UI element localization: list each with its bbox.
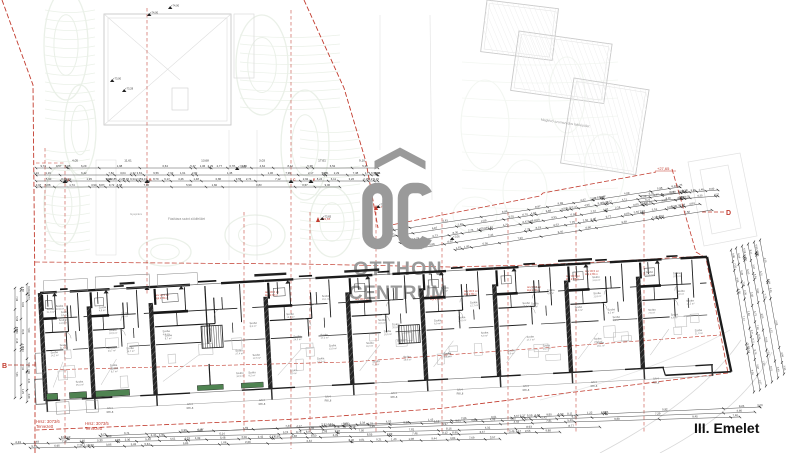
svg-text:1,98: 1,98 <box>117 164 123 168</box>
svg-text:3,46: 3,46 <box>509 429 515 433</box>
svg-text:5,20: 5,20 <box>362 164 368 168</box>
svg-text:2,36: 2,36 <box>125 438 131 442</box>
svg-text:13,8 m²: 13,8 m² <box>286 316 294 319</box>
svg-text:7,99: 7,99 <box>15 296 18 301</box>
svg-text:4,21: 4,21 <box>27 379 30 384</box>
svg-text:5,30: 5,30 <box>97 438 103 442</box>
svg-text:13,4 m²: 13,4 m² <box>646 274 654 277</box>
svg-text:7,69: 7,69 <box>27 369 30 374</box>
svg-text:légt 2,65 m: légt 2,65 m <box>155 296 168 300</box>
svg-text:Lift 4: Lift 4 <box>107 407 113 410</box>
svg-text:0,78: 0,78 <box>229 164 235 168</box>
svg-text:1,61: 1,61 <box>180 171 186 175</box>
svg-text:R8 L8: R8 L8 <box>259 403 266 406</box>
svg-text:0,85: 0,85 <box>106 443 112 447</box>
svg-text:8,16: 8,16 <box>446 427 452 431</box>
svg-text:8,6 m²: 8,6 m² <box>250 325 257 328</box>
svg-text:8,3 m²: 8,3 m² <box>121 315 128 318</box>
svg-text:R8 L8: R8 L8 <box>591 385 598 388</box>
svg-text:5,40: 5,40 <box>27 362 30 367</box>
svg-text:2,92: 2,92 <box>303 177 309 181</box>
svg-text:4,71: 4,71 <box>323 171 329 175</box>
svg-text:6,9 m²: 6,9 m² <box>434 322 441 325</box>
svg-text:8,0 m²: 8,0 m² <box>677 293 684 296</box>
svg-text:7,45: 7,45 <box>124 177 130 181</box>
svg-text:1,19: 1,19 <box>434 419 440 423</box>
svg-text:7,69: 7,69 <box>27 327 30 332</box>
svg-text:2,79: 2,79 <box>525 416 531 420</box>
svg-text:1,32: 1,32 <box>130 171 136 175</box>
svg-text:6,50: 6,50 <box>558 412 564 416</box>
svg-text:8,99: 8,99 <box>452 430 458 434</box>
svg-text:4,99: 4,99 <box>490 417 496 421</box>
svg-text:7,44: 7,44 <box>285 424 291 428</box>
svg-text:25,4 m²: 25,4 m² <box>76 383 84 386</box>
svg-text:4,61: 4,61 <box>170 437 176 441</box>
svg-text:5,69: 5,69 <box>131 442 137 446</box>
svg-text:2,42: 2,42 <box>258 435 264 439</box>
svg-text:7,91: 7,91 <box>21 365 24 370</box>
svg-text:8,59: 8,59 <box>106 434 112 438</box>
svg-text:12,3 m²: 12,3 m² <box>253 357 261 360</box>
svg-text:4,42: 4,42 <box>580 197 586 202</box>
svg-text:+73,28: +73,28 <box>125 87 134 91</box>
svg-text:7,59: 7,59 <box>243 426 249 430</box>
svg-text:17,2 m²: 17,2 m² <box>321 336 329 339</box>
svg-text:R8 L8: R8 L8 <box>653 382 660 385</box>
svg-text:3,03: 3,03 <box>259 159 265 163</box>
svg-text:4,46: 4,46 <box>375 171 381 175</box>
svg-text:Lift 4: Lift 4 <box>391 392 397 395</box>
svg-text:24,0 m²: 24,0 m² <box>293 338 301 341</box>
svg-text:14,2 m²: 14,2 m² <box>51 354 59 357</box>
svg-text:23,7 m²: 23,7 m² <box>108 349 116 352</box>
svg-text:6,1 m²: 6,1 m² <box>372 363 379 366</box>
svg-text:5,48: 5,48 <box>291 434 297 438</box>
svg-text:3,43: 3,43 <box>669 190 675 194</box>
svg-text:9,2 m²: 9,2 m² <box>441 290 448 293</box>
svg-text:7,2 m²: 7,2 m² <box>531 305 538 308</box>
svg-text:16,9 m²: 16,9 m² <box>236 375 244 378</box>
svg-text:7,50: 7,50 <box>359 428 365 432</box>
svg-text:4,05: 4,05 <box>72 159 78 163</box>
svg-text:13,2 m²: 13,2 m² <box>686 302 694 305</box>
svg-text:2,55: 2,55 <box>525 429 531 433</box>
svg-text:15,9 m²: 15,9 m² <box>403 358 411 361</box>
svg-text:5,76: 5,76 <box>648 191 654 195</box>
svg-text:5,79: 5,79 <box>15 329 18 334</box>
svg-text:4,27: 4,27 <box>714 192 720 196</box>
svg-text:8,45: 8,45 <box>683 188 689 192</box>
svg-text:7,00: 7,00 <box>144 183 150 187</box>
svg-text:1,06: 1,06 <box>268 171 274 175</box>
svg-text:7,81: 7,81 <box>546 419 552 423</box>
svg-text:14,9 m²: 14,9 m² <box>59 322 67 325</box>
svg-text:1,50: 1,50 <box>88 443 94 447</box>
svg-text:3,04: 3,04 <box>120 171 126 175</box>
svg-text:1,22: 1,22 <box>587 411 593 415</box>
svg-text:6,14: 6,14 <box>219 432 225 436</box>
svg-text:1,95: 1,95 <box>86 177 92 181</box>
svg-text:1,74: 1,74 <box>69 183 75 187</box>
svg-text:4,31: 4,31 <box>485 426 491 430</box>
svg-text:7,12: 7,12 <box>275 177 281 181</box>
svg-text:22,8 m²: 22,8 m² <box>56 308 64 311</box>
svg-text:B: B <box>2 363 7 370</box>
svg-text:10,9 m²: 10,9 m² <box>109 332 117 335</box>
svg-text:21,4 m²: 21,4 m² <box>575 309 583 312</box>
svg-text:7,46: 7,46 <box>412 431 418 435</box>
svg-text:4,39: 4,39 <box>195 436 201 440</box>
svg-text:9,1 m²: 9,1 m² <box>613 319 620 322</box>
svg-text:+73,65: +73,65 <box>321 217 331 221</box>
svg-text:2,46: 2,46 <box>698 187 704 191</box>
svg-text:R8 L8: R8 L8 <box>391 396 398 399</box>
svg-text:6,33: 6,33 <box>15 440 21 444</box>
svg-text:4,64: 4,64 <box>260 164 266 168</box>
svg-text:3,57: 3,57 <box>490 435 496 439</box>
svg-text:1,73: 1,73 <box>365 171 371 175</box>
svg-text:5,9 m²: 5,9 m² <box>290 372 297 375</box>
svg-text:4,17: 4,17 <box>296 424 302 428</box>
svg-text:9,06: 9,06 <box>325 183 331 187</box>
svg-text:5,34: 5,34 <box>144 442 150 446</box>
svg-text:0,92: 0,92 <box>662 407 668 411</box>
svg-text:2,96: 2,96 <box>369 424 375 428</box>
svg-text:+27,65: +27,65 <box>657 166 670 171</box>
svg-text:5,88: 5,88 <box>45 183 51 187</box>
svg-text:19,1 m²: 19,1 m² <box>322 298 330 301</box>
svg-text:5,38: 5,38 <box>307 164 313 168</box>
svg-text:6,42: 6,42 <box>81 171 87 175</box>
svg-text:III. Emelet: III. Emelet <box>694 420 760 436</box>
svg-text:8,77: 8,77 <box>568 424 574 428</box>
svg-text:9,38: 9,38 <box>403 420 409 424</box>
svg-text:8,7 m²: 8,7 m² <box>165 337 172 340</box>
svg-text:6,68: 6,68 <box>117 183 123 187</box>
svg-text:11,6 m²: 11,6 m² <box>593 295 601 298</box>
svg-text:2,22: 2,22 <box>66 177 72 181</box>
svg-text:9,07: 9,07 <box>335 429 341 433</box>
svg-text:5,97: 5,97 <box>442 422 448 426</box>
svg-text:2,00: 2,00 <box>757 403 763 407</box>
svg-text:5,23: 5,23 <box>31 444 37 448</box>
svg-text:9,9 m²: 9,9 m² <box>444 355 451 358</box>
svg-text:Fásításra szánt zöldfelület: Fásításra szánt zöldfelület <box>168 217 205 221</box>
svg-text:+73,00: +73,00 <box>113 77 122 81</box>
svg-text:4,9 m²: 4,9 m² <box>99 309 106 312</box>
svg-text:2,93: 2,93 <box>322 429 328 433</box>
svg-text:2,69: 2,69 <box>387 432 393 436</box>
svg-text:5,0 m²: 5,0 m² <box>481 334 488 337</box>
svg-text:8,07: 8,07 <box>306 430 312 434</box>
svg-text:5,99: 5,99 <box>186 183 192 187</box>
svg-text:6,52: 6,52 <box>330 164 336 168</box>
svg-text:+73,65: +73,65 <box>238 165 247 169</box>
svg-text:9,56: 9,56 <box>153 171 159 175</box>
svg-text:8,96: 8,96 <box>690 188 696 192</box>
svg-text:2,74: 2,74 <box>246 177 252 181</box>
svg-text:9,01: 9,01 <box>455 418 461 422</box>
svg-text:4,24: 4,24 <box>33 171 39 175</box>
svg-text:8,87: 8,87 <box>99 183 105 187</box>
svg-text:11,61: 11,61 <box>124 159 132 163</box>
svg-text:OTTHON: OTTHON <box>353 258 443 280</box>
svg-text:16,6 m²: 16,6 m² <box>384 333 392 336</box>
svg-text:6,78: 6,78 <box>334 425 340 429</box>
svg-text:2,86: 2,86 <box>115 438 121 442</box>
svg-text:Lift 4: Lift 4 <box>523 385 529 388</box>
svg-text:3,63: 3,63 <box>137 171 143 175</box>
svg-text:8,40: 8,40 <box>349 438 355 442</box>
svg-text:12,7 m²: 12,7 m² <box>470 304 478 307</box>
svg-text:4,66: 4,66 <box>309 426 315 430</box>
svg-text:13,9 m²: 13,9 m² <box>329 347 337 350</box>
svg-text:7,63: 7,63 <box>15 372 18 377</box>
svg-text:9,74: 9,74 <box>296 430 302 434</box>
svg-text:1,06: 1,06 <box>200 164 206 168</box>
svg-text:9,88: 9,88 <box>545 428 551 432</box>
svg-text:17,7 m²: 17,7 m² <box>527 338 535 341</box>
svg-text:2,77: 2,77 <box>217 164 223 168</box>
svg-text:9,43: 9,43 <box>142 177 148 181</box>
svg-text:4,78: 4,78 <box>350 425 356 429</box>
svg-text:1,48: 1,48 <box>193 177 199 181</box>
svg-text:18,9 m²: 18,9 m² <box>523 305 531 308</box>
svg-text:9,24: 9,24 <box>739 404 745 408</box>
svg-text:6,11: 6,11 <box>331 177 337 181</box>
svg-text:9,71: 9,71 <box>101 432 107 436</box>
svg-text:3,68: 3,68 <box>27 394 30 399</box>
svg-text:3,47: 3,47 <box>479 430 485 434</box>
svg-text:8,06: 8,06 <box>21 329 24 334</box>
svg-text:21,6 m²: 21,6 m² <box>531 289 539 292</box>
svg-text:Lift 4: Lift 4 <box>591 381 597 384</box>
svg-text:5,90: 5,90 <box>46 177 52 181</box>
svg-text:3,26: 3,26 <box>349 177 355 181</box>
svg-text:7,5 m²: 7,5 m² <box>648 311 655 314</box>
svg-text:9,10: 9,10 <box>359 159 365 163</box>
svg-text:8,2 m²: 8,2 m² <box>608 311 615 314</box>
svg-text:6,65: 6,65 <box>65 164 71 168</box>
svg-text:6,29: 6,29 <box>81 164 87 168</box>
svg-text:8,79: 8,79 <box>153 177 159 181</box>
svg-text:2,29: 2,29 <box>334 171 340 175</box>
svg-text:R8 L8: R8 L8 <box>325 399 332 402</box>
svg-text:Tervezett: Tervezett <box>85 426 103 431</box>
svg-text:2,40: 2,40 <box>457 222 463 227</box>
svg-text:1,88: 1,88 <box>221 440 227 444</box>
svg-text:Tervezett: Tervezett <box>36 424 54 429</box>
svg-text:8,55: 8,55 <box>367 432 373 436</box>
svg-text:6,37: 6,37 <box>600 194 606 199</box>
svg-text:8,12: 8,12 <box>442 431 448 435</box>
svg-text:7,69: 7,69 <box>469 436 475 440</box>
svg-text:4,5 m²: 4,5 m² <box>547 292 554 295</box>
svg-text:6,95: 6,95 <box>54 444 60 448</box>
svg-text:1,45: 1,45 <box>227 171 233 175</box>
svg-text:1,19: 1,19 <box>45 171 51 175</box>
svg-text:9,58: 9,58 <box>21 287 24 292</box>
svg-text:2,28: 2,28 <box>77 443 83 447</box>
svg-text:1,82: 1,82 <box>212 183 218 187</box>
svg-text:7,38: 7,38 <box>353 171 359 175</box>
svg-text:5,49: 5,49 <box>567 418 573 422</box>
svg-text:17,61: 17,61 <box>318 159 326 163</box>
svg-text:4,44: 4,44 <box>514 420 520 424</box>
svg-text:4,90: 4,90 <box>736 409 742 413</box>
svg-text:4,84: 4,84 <box>450 436 456 440</box>
svg-text:5,23: 5,23 <box>645 197 651 201</box>
svg-text:Lift 4: Lift 4 <box>325 395 331 398</box>
svg-text:17,2 m²: 17,2 m² <box>110 367 118 370</box>
svg-text:7,64: 7,64 <box>603 410 609 414</box>
svg-text:9,2 m²: 9,2 m² <box>248 374 255 377</box>
svg-text:1,29: 1,29 <box>21 389 24 394</box>
svg-text:0,71: 0,71 <box>124 431 130 435</box>
svg-text:D: D <box>726 210 731 217</box>
svg-text:21,0 m²: 21,0 m² <box>695 332 703 335</box>
svg-text:18,1 m²: 18,1 m² <box>597 344 605 347</box>
svg-text:9,57: 9,57 <box>56 164 62 168</box>
svg-text:Lift 4: Lift 4 <box>187 403 193 406</box>
svg-text:9,44: 9,44 <box>431 436 437 440</box>
svg-text:19,3 m²: 19,3 m² <box>317 360 325 363</box>
svg-text:+1,06: +1,06 <box>453 235 460 239</box>
svg-text:8,7 m²: 8,7 m² <box>111 370 118 373</box>
svg-text:27,4 m²: 27,4 m² <box>235 352 243 355</box>
svg-text:8,24: 8,24 <box>317 177 323 181</box>
svg-text:21,0 m²: 21,0 m² <box>47 311 55 314</box>
svg-text:2,85: 2,85 <box>111 177 117 181</box>
svg-text:5,35: 5,35 <box>697 193 703 197</box>
svg-text:5,84: 5,84 <box>535 413 541 417</box>
svg-text:8,42: 8,42 <box>287 164 293 168</box>
svg-text:9,81: 9,81 <box>359 438 365 442</box>
svg-text:7,81: 7,81 <box>409 427 415 431</box>
svg-text:5,48: 5,48 <box>220 436 226 440</box>
svg-text:0,64: 0,64 <box>162 164 168 168</box>
svg-text:1,15: 1,15 <box>373 177 379 181</box>
svg-text:4,54: 4,54 <box>471 418 477 422</box>
svg-text:6,17: 6,17 <box>164 177 170 181</box>
svg-text:Lift 4: Lift 4 <box>653 378 659 381</box>
svg-text:3,90: 3,90 <box>91 183 97 187</box>
svg-text:3,97: 3,97 <box>36 183 42 187</box>
svg-text:7,37: 7,37 <box>62 439 68 443</box>
svg-text:11,6 m²: 11,6 m² <box>592 279 600 282</box>
svg-text:8,50: 8,50 <box>709 186 715 190</box>
svg-text:0,86: 0,86 <box>216 177 222 181</box>
svg-text:8,93: 8,93 <box>526 425 532 429</box>
svg-text:Gyeprács: Gyeprács <box>130 212 143 216</box>
svg-text:Lift 4: Lift 4 <box>259 399 265 402</box>
svg-text:0,90: 0,90 <box>181 428 187 432</box>
svg-text:9,72: 9,72 <box>109 183 115 187</box>
svg-text:5,85: 5,85 <box>183 441 189 445</box>
svg-text:6,19: 6,19 <box>665 196 671 200</box>
svg-text:9,88: 9,88 <box>614 417 620 421</box>
svg-text:21,6 m²: 21,6 m² <box>60 347 68 350</box>
svg-text:8,50: 8,50 <box>311 434 317 438</box>
svg-text:2,57: 2,57 <box>27 295 30 300</box>
svg-text:1,65: 1,65 <box>79 439 85 443</box>
svg-text:0,83: 0,83 <box>256 183 262 187</box>
svg-text:13,68: 13,68 <box>201 159 209 163</box>
svg-text:9,21: 9,21 <box>376 437 382 441</box>
svg-text:2,34: 2,34 <box>360 421 366 425</box>
svg-text:5,47: 5,47 <box>190 164 196 168</box>
svg-text:6,0 m²: 6,0 m² <box>378 322 385 325</box>
svg-text:9,61: 9,61 <box>680 195 686 199</box>
svg-text:7,40: 7,40 <box>732 413 738 417</box>
svg-text:1,40: 1,40 <box>391 437 397 441</box>
svg-text:2,00: 2,00 <box>241 435 247 439</box>
svg-text:R8 L8: R8 L8 <box>107 411 114 414</box>
svg-text:9,73: 9,73 <box>40 164 46 168</box>
svg-text:9,85: 9,85 <box>546 412 552 416</box>
svg-text:8,77: 8,77 <box>606 199 612 204</box>
svg-text:0,67: 0,67 <box>302 183 308 187</box>
svg-text:5,64: 5,64 <box>21 347 24 352</box>
svg-text:8,6 m²: 8,6 m² <box>61 314 68 317</box>
svg-text:4,03: 4,03 <box>386 419 392 423</box>
svg-text:9,45: 9,45 <box>692 414 698 418</box>
svg-text:7,12: 7,12 <box>65 435 71 439</box>
svg-text:2,23: 2,23 <box>245 440 251 444</box>
svg-text:9,55: 9,55 <box>236 177 242 181</box>
svg-text:+74,00: +74,00 <box>171 4 180 8</box>
svg-text:1,97: 1,97 <box>198 427 204 431</box>
svg-text:7,82: 7,82 <box>108 171 114 175</box>
svg-text:+74,00: +74,00 <box>150 11 159 15</box>
svg-text:5,58: 5,58 <box>15 316 18 321</box>
svg-text:2,29: 2,29 <box>208 164 214 168</box>
svg-text:1,08: 1,08 <box>408 437 414 441</box>
svg-text:8,9 m²: 8,9 m² <box>508 352 515 355</box>
svg-text:4,11: 4,11 <box>622 197 628 202</box>
svg-text:5,24: 5,24 <box>283 430 289 434</box>
svg-text:7,99: 7,99 <box>285 171 291 175</box>
svg-text:24,6 m²: 24,6 m² <box>458 319 466 322</box>
svg-text:2,86: 2,86 <box>461 416 467 420</box>
svg-text:2,17: 2,17 <box>308 171 314 175</box>
svg-text:6,62: 6,62 <box>21 302 24 307</box>
svg-text:Lift 4: Lift 4 <box>457 388 463 391</box>
svg-text:7,63: 7,63 <box>168 171 174 175</box>
svg-text:2,16: 2,16 <box>15 338 18 343</box>
svg-text:8,2 m²: 8,2 m² <box>366 345 373 348</box>
svg-text:2,82: 2,82 <box>192 171 198 175</box>
svg-text:R8 L8: R8 L8 <box>187 407 194 410</box>
svg-text:7,29: 7,29 <box>655 411 661 415</box>
svg-text:2,42: 2,42 <box>306 439 312 443</box>
svg-text:R8 L8: R8 L8 <box>523 389 530 392</box>
svg-text:R8 L8: R8 L8 <box>457 392 464 395</box>
svg-text:18,1 m²: 18,1 m² <box>673 275 681 278</box>
svg-text:18,5 m²: 18,5 m² <box>543 347 551 350</box>
svg-text:4,46: 4,46 <box>178 177 184 181</box>
svg-text:4,03: 4,03 <box>184 436 190 440</box>
